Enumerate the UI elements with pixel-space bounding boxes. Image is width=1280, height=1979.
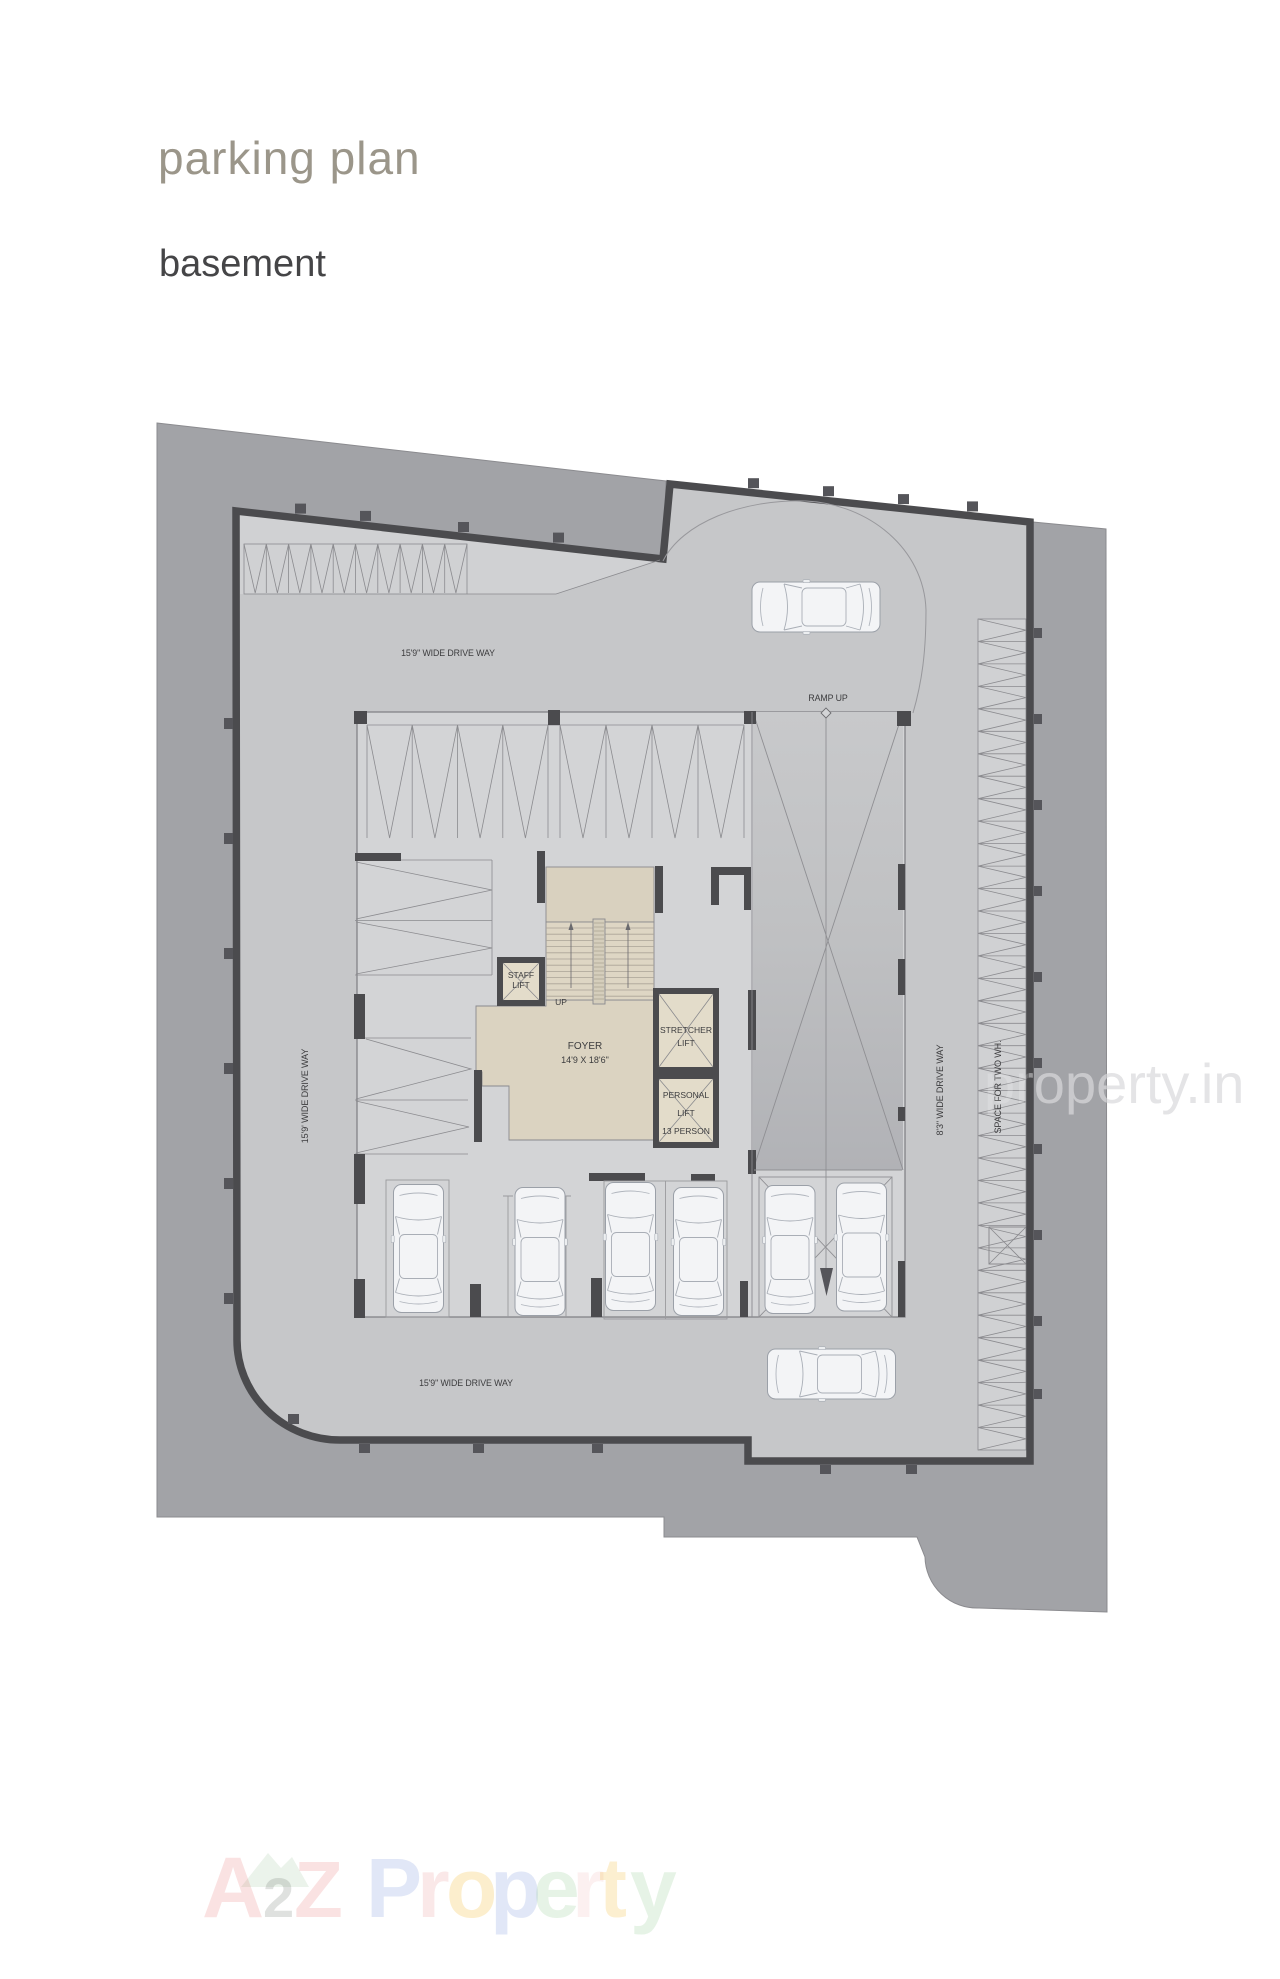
svg-text:Z: Z [294,1845,343,1934]
svg-text:PERSONAL: PERSONAL [663,1090,710,1100]
svg-text:t: t [599,1841,627,1935]
svg-text:y: y [630,1841,677,1935]
svg-text:15'9" WIDE DRIVE WAY: 15'9" WIDE DRIVE WAY [401,648,495,658]
svg-text:13 PERSON: 13 PERSON [662,1126,710,1136]
svg-text:FOYER: FOYER [568,1041,602,1052]
svg-text:UP: UP [555,997,567,1007]
svg-text:P: P [366,1841,422,1935]
svg-text:STAFF: STAFF [508,970,534,980]
svg-text:15'9' WIDE DRIVE WAY: 15'9' WIDE DRIVE WAY [300,1049,310,1144]
svg-text:LIFT: LIFT [677,1038,694,1048]
svg-text:LIFT: LIFT [677,1108,694,1118]
svg-text:basement: basement [159,243,326,285]
svg-text:A: A [202,1840,264,1936]
svg-text:r: r [417,1841,450,1935]
svg-text:15'9" WIDE DRIVE WAY: 15'9" WIDE DRIVE WAY [419,1378,513,1388]
svg-text:LIFT: LIFT [512,980,529,990]
svg-text:parking plan: parking plan [158,132,421,184]
svg-text:14'9 X 18'6": 14'9 X 18'6" [561,1055,609,1065]
svg-text:2: 2 [263,1866,294,1929]
svg-text:8'3" WIDE DRIVE WAY: 8'3" WIDE DRIVE WAY [935,1044,945,1135]
svg-text:STRETCHER: STRETCHER [660,1025,712,1035]
svg-text:RAMP UP: RAMP UP [808,693,847,703]
